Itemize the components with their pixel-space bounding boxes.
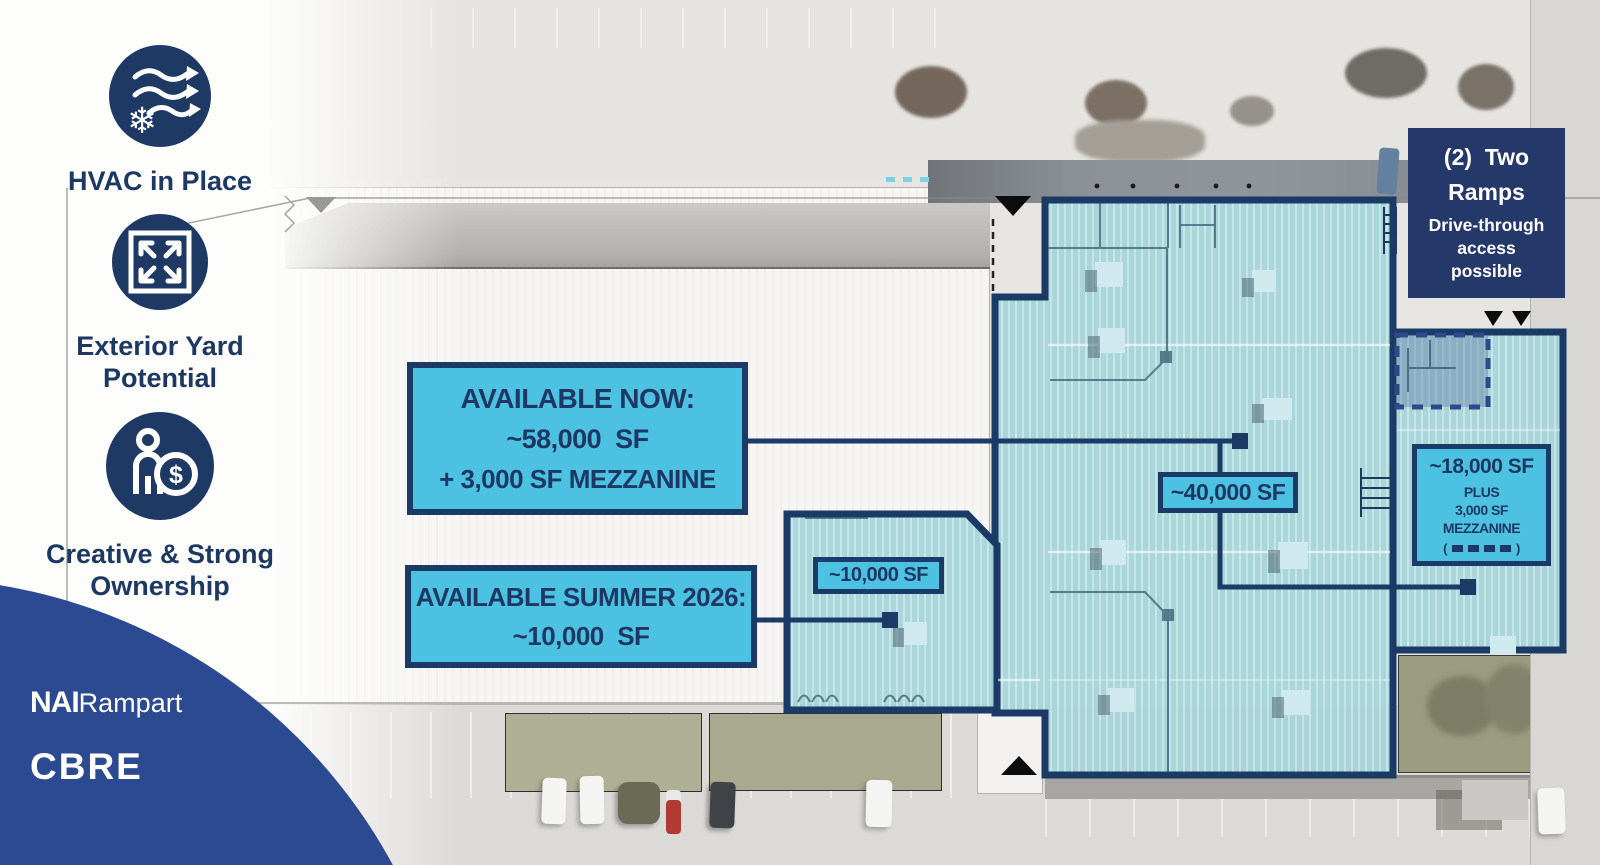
nai-logo-text: NAI: [30, 686, 79, 719]
feature-exterior-yard-label: Exterior Yard Potential: [0, 331, 320, 395]
ramps-note-1: Drive-through: [1429, 215, 1545, 236]
feature-hvac: ❄ HVAC in Place: [0, 45, 320, 197]
ramps-note-2: access: [1457, 238, 1515, 259]
mezzanine-legend: ( ): [1443, 541, 1520, 556]
ramps-callout: (2) Two Ramps Drive-through access possi…: [1408, 128, 1565, 298]
legend-paren: ): [1516, 541, 1520, 556]
feature-hvac-label: HVAC in Place: [0, 166, 320, 197]
nai-rampart-logo: NAIRampart: [30, 686, 182, 720]
area-40000-text: ~40,000 SF: [1171, 479, 1286, 506]
area-40000-label: ~40,000 SF: [1158, 472, 1298, 513]
plan-dots: [1095, 184, 1252, 189]
area-18000-size: ~18,000 SF: [1429, 455, 1533, 479]
area-18000-mezz: MEZZANINE: [1443, 520, 1520, 536]
available-now-mezzanine: + 3,000 SF MEZZANINE: [439, 464, 716, 495]
available-2026-title: AVAILABLE SUMMER 2026:: [416, 582, 746, 613]
legend-dash-icon: [1484, 545, 1495, 552]
available-now-title: AVAILABLE NOW:: [460, 383, 694, 415]
legend-dash-icon: [1468, 545, 1479, 552]
feature-ownership-label: Creative & Strong Ownership: [0, 539, 320, 603]
svg-text:$: $: [169, 461, 183, 489]
cbre-logo: CBRE: [30, 746, 182, 788]
feature-ownership: $ Creative & Strong Ownership: [0, 412, 320, 603]
area-10000-text: ~10,000 SF: [829, 564, 928, 587]
feature-list: ❄ HVAC in Place Exterior Yard Potential: [0, 0, 320, 620]
feature-exterior-yard: Exterior Yard Potential: [0, 214, 320, 395]
hvac-wind-snowflake-icon: ❄: [109, 45, 211, 147]
flyer-canvas: AVAILABLE NOW: ~58,000 SF + 3,000 SF MEZ…: [0, 0, 1600, 865]
mezzanine-dashed-area: [1397, 335, 1488, 407]
rampart-logo-text: Rampart: [79, 688, 183, 718]
legend-dash-icon: [1452, 545, 1463, 552]
available-now-size: ~58,000 SF: [506, 424, 648, 455]
available-summer-2026-callout: AVAILABLE SUMMER 2026: ~10,000 SF: [405, 565, 757, 668]
ramps-count: (2) Two: [1444, 144, 1529, 171]
expand-arrows-icon: [112, 214, 208, 310]
legend-dash-icon: [1500, 545, 1511, 552]
legend-paren: (: [1443, 541, 1447, 556]
person-dollar-icon: $: [106, 412, 214, 520]
ramps-note-3: possible: [1451, 261, 1522, 282]
ramps-word: Ramps: [1448, 179, 1525, 206]
brand-logos: NAIRampart CBRE: [30, 686, 182, 788]
available-2026-size: ~10,000 SF: [513, 621, 650, 652]
svg-text:❄: ❄: [127, 101, 157, 142]
area-18000-mezz-size: 3,000 SF: [1455, 502, 1508, 518]
available-now-callout: AVAILABLE NOW: ~58,000 SF + 3,000 SF MEZ…: [407, 362, 748, 515]
area-18000-plus: PLUS: [1464, 484, 1499, 500]
area-18000-callout: ~18,000 SF PLUS 3,000 SF MEZZANINE ( ): [1412, 444, 1551, 566]
area-10000-label: ~10,000 SF: [813, 557, 944, 594]
